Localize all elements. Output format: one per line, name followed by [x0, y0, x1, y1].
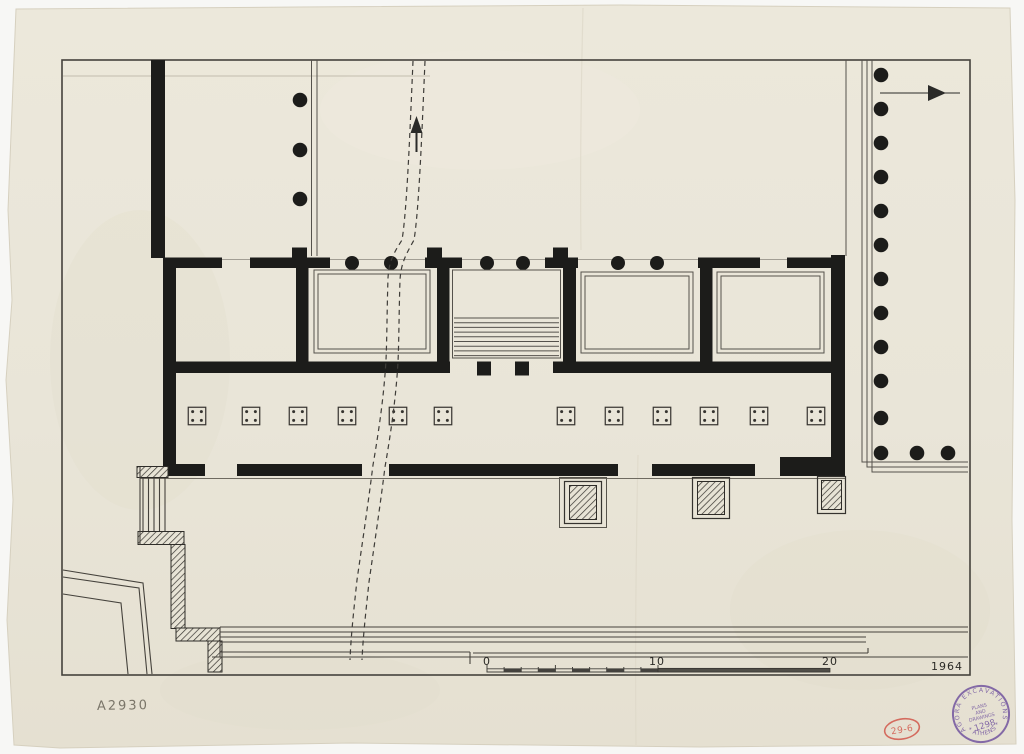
inventory-number: A2930: [97, 698, 149, 714]
agora-plan-scan: 0 10 20 1964 A2930 AGORA EXCAVATIONS * A…: [0, 0, 1024, 754]
year-label: 1964: [931, 660, 963, 673]
scale-label-20: 20: [822, 655, 838, 668]
scale-label-10: 10: [649, 655, 665, 668]
scale-label-0: 0: [483, 655, 491, 668]
scanned-plan-page: 0 10 20 1964 A2930 AGORA EXCAVATIONS * A…: [0, 0, 1024, 754]
